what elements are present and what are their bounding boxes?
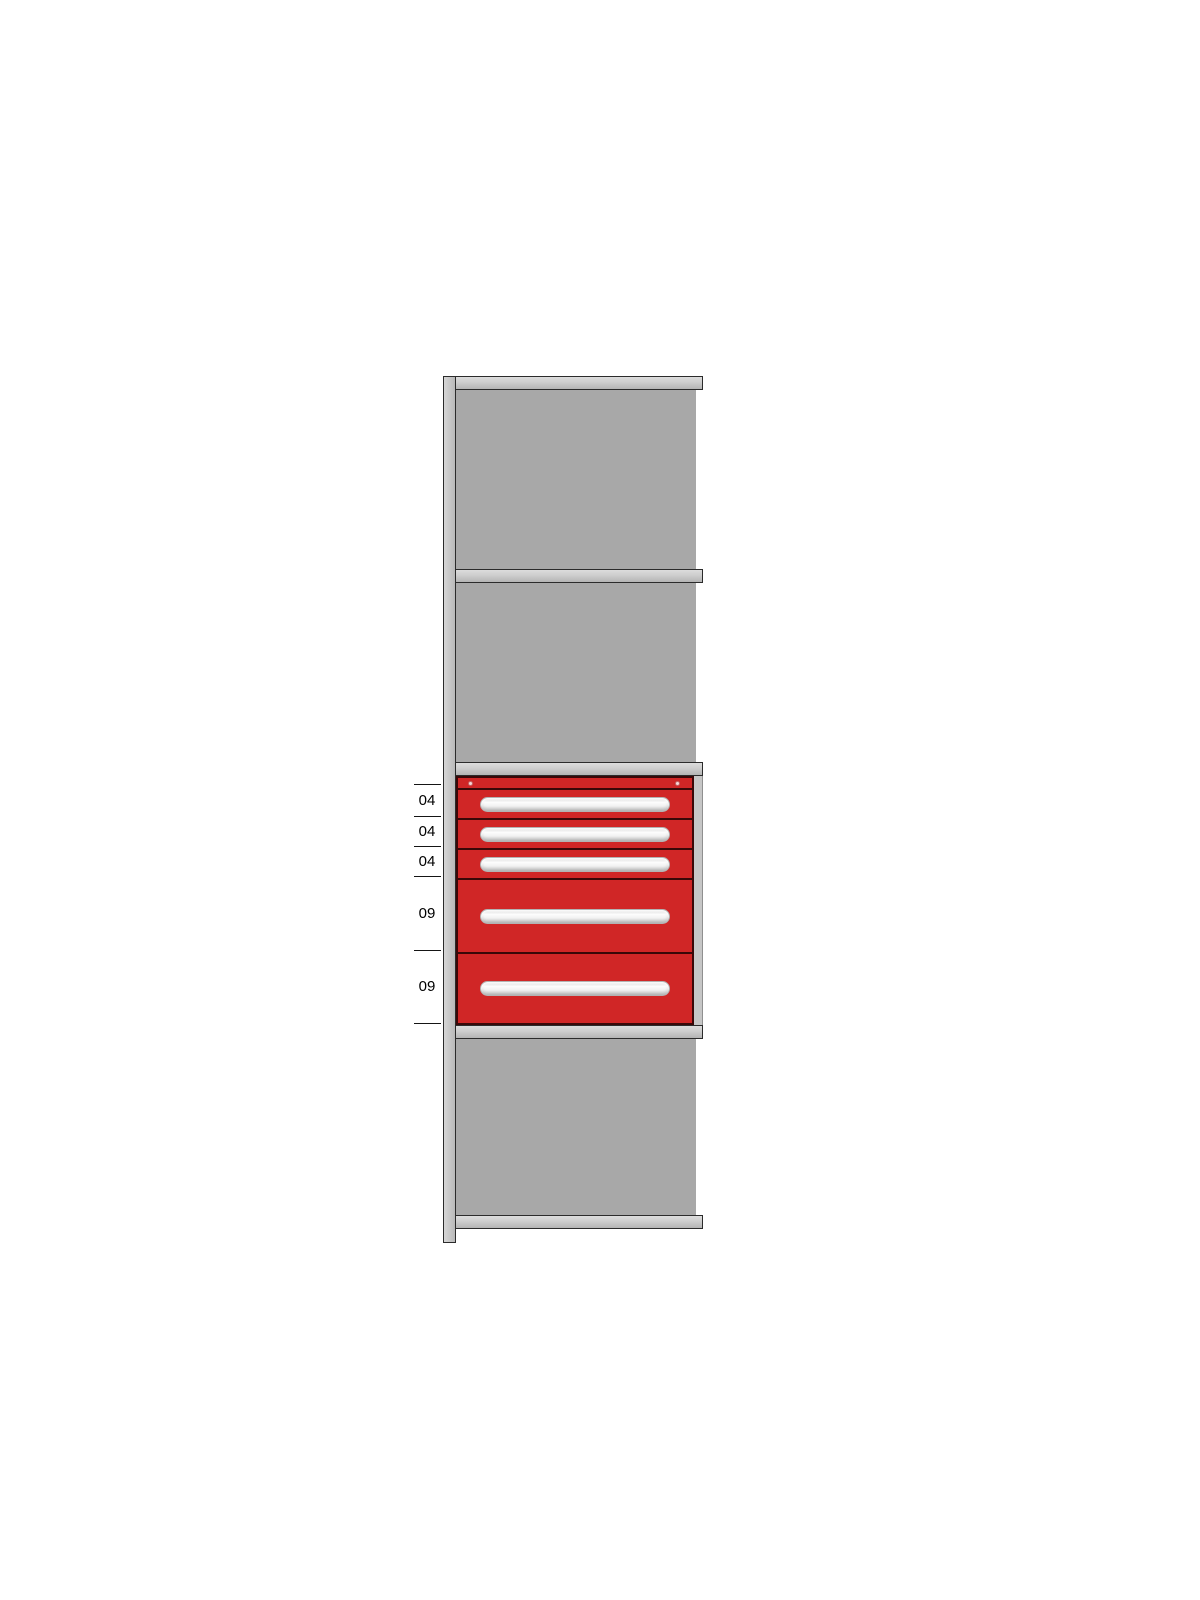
drawer-handle (480, 857, 670, 872)
shelf-bar-1 (455, 376, 703, 390)
tick-line (414, 1023, 441, 1024)
shelf-bar-2 (455, 569, 703, 583)
drawer-handle (480, 909, 670, 924)
back-panel-bottom (456, 1039, 696, 1215)
back-panel-middle (456, 583, 696, 762)
shelf-bar-3 (455, 762, 703, 776)
drawer-04-3 (458, 848, 692, 878)
drawer-cabinet (456, 776, 694, 1025)
shelf-bar-4 (455, 1025, 703, 1039)
bay-side-strip (694, 776, 703, 1025)
screw-icon (675, 781, 680, 786)
drawer-09-1 (458, 878, 692, 952)
drawer-size-label: 09 (409, 876, 445, 950)
cabinet-elevation-diagram: 04 04 04 09 09 (0, 0, 1200, 1600)
drawer-size-label: 04 (409, 816, 445, 846)
drawer-handle (480, 981, 670, 996)
screw-icon (468, 781, 473, 786)
drawer-04-2 (458, 818, 692, 848)
drawer-size-label: 09 (409, 950, 445, 1023)
shelf-bar-5 (455, 1215, 703, 1229)
drawer-09-2 (458, 952, 692, 1023)
drawer-handle (480, 827, 670, 842)
back-panel-top (456, 390, 696, 569)
drawer-handle (480, 797, 670, 812)
drawer-size-label: 04 (409, 784, 445, 816)
cabinet-top-strip (458, 778, 692, 790)
drawer-size-label: 04 (409, 846, 445, 876)
drawer-04-1 (458, 790, 692, 818)
